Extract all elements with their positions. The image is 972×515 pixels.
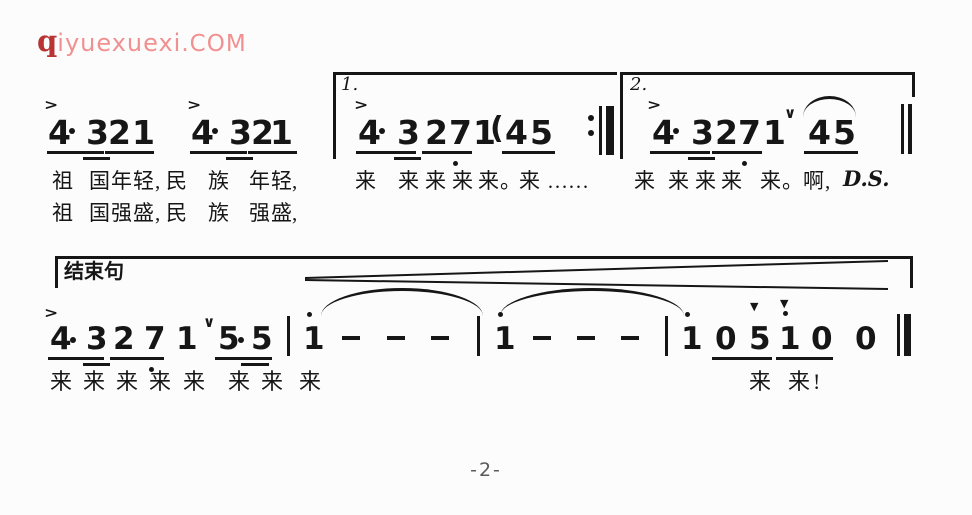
dash-rest xyxy=(387,336,405,340)
note: 4 xyxy=(505,116,528,149)
underline xyxy=(502,151,555,154)
note: 4 xyxy=(358,116,381,149)
lyric: ! xyxy=(813,371,820,393)
sheet-music-page: qiyuexuexi.COM >>>>432143211.43271(452.4… xyxy=(0,0,972,515)
lyric: 年 xyxy=(111,171,132,192)
barline xyxy=(287,316,290,356)
beam2 xyxy=(83,157,110,160)
lyric: 族 xyxy=(208,203,229,224)
volta2-label: 2. xyxy=(630,76,647,94)
underline xyxy=(776,357,833,360)
lyric: 来 xyxy=(83,371,105,393)
note: 0 xyxy=(715,324,737,355)
barline xyxy=(665,316,668,356)
note: 4 xyxy=(808,116,831,149)
volta2-right-stub xyxy=(912,72,915,97)
accent-icon: > xyxy=(187,98,201,112)
repeat-dot xyxy=(588,130,594,136)
dash-rest xyxy=(431,336,449,340)
underline xyxy=(650,151,710,154)
octave-dot-low xyxy=(149,367,154,372)
repeat-dot xyxy=(588,115,594,121)
note: 0 xyxy=(811,324,833,355)
breath-mark-icon: ∨ xyxy=(203,315,215,330)
lyric: 来 xyxy=(668,171,689,192)
lyric: , xyxy=(155,203,160,224)
note: 5 xyxy=(833,116,856,149)
lyric: 来 xyxy=(760,171,781,192)
dash-rest xyxy=(577,336,595,340)
lyric: , xyxy=(292,171,297,192)
underline xyxy=(804,151,858,154)
lyric: 祖 xyxy=(52,203,73,224)
octave-dot-high xyxy=(783,311,788,316)
note: 5 xyxy=(749,324,771,355)
note: 3 xyxy=(691,116,714,149)
note: 5 xyxy=(218,324,240,355)
lyric: 来 xyxy=(116,371,138,393)
lyric: 年 xyxy=(249,171,270,192)
lyric: 民 xyxy=(166,171,187,192)
lyric: 来 xyxy=(355,171,376,192)
underline xyxy=(712,357,772,360)
note: 0 xyxy=(855,324,877,355)
beam2 xyxy=(394,157,421,160)
duration-dot xyxy=(69,128,75,134)
underline xyxy=(105,151,154,154)
score-layer: >>>>432143211.43271(452.43271∨45D.S.结束句>… xyxy=(0,0,972,515)
accent-icon: > xyxy=(647,98,661,112)
underline xyxy=(215,357,272,360)
lyric: 国 xyxy=(89,203,110,224)
octave-dot-low xyxy=(453,161,458,166)
tie-arc xyxy=(500,288,684,316)
underline xyxy=(110,357,164,360)
lyric: 来 xyxy=(425,171,446,192)
beam2 xyxy=(226,157,253,160)
lyric: 盛 xyxy=(271,203,292,224)
note: 2 xyxy=(715,116,738,149)
lyric: , xyxy=(155,171,160,192)
lyric: …… xyxy=(547,171,589,192)
lyric: 强 xyxy=(111,203,132,224)
slur-arc xyxy=(803,96,856,117)
note: 7 xyxy=(738,116,761,149)
note: 1 xyxy=(270,116,293,149)
lyric: 来 xyxy=(721,171,742,192)
note: 4 xyxy=(652,116,675,149)
ending-phrase-label: 结束句 xyxy=(64,262,124,282)
note: 7 xyxy=(449,116,472,149)
lyric: 。 xyxy=(782,171,803,192)
volta2-top-line xyxy=(620,72,915,75)
lyric: 来 xyxy=(478,171,499,192)
note: 3 xyxy=(86,116,109,149)
system2-top-line xyxy=(55,256,913,259)
volta2-left-line xyxy=(620,72,623,159)
lyric: 轻 xyxy=(133,171,154,192)
system2-right-stub xyxy=(910,256,913,288)
note: 2 xyxy=(113,324,135,355)
lyric: , xyxy=(825,171,830,192)
lyric: 来 xyxy=(695,171,716,192)
dash-rest xyxy=(621,336,639,340)
note: 3 xyxy=(397,116,420,149)
lyric: 来 xyxy=(634,171,655,192)
lyric: 来 xyxy=(749,371,771,393)
note: 1 xyxy=(303,324,325,355)
lyric: 来 xyxy=(519,171,540,192)
underline xyxy=(48,357,104,360)
note: 2 xyxy=(425,116,448,149)
note: 1 xyxy=(779,324,801,355)
underline xyxy=(248,151,297,154)
lyric: 来 xyxy=(50,371,72,393)
repeat-barline-thick xyxy=(606,106,614,155)
final-barline xyxy=(908,104,912,154)
underline xyxy=(356,151,416,154)
final-barline xyxy=(897,314,900,356)
note: 4 xyxy=(48,116,71,149)
final-barline xyxy=(904,314,911,356)
breath-mark-icon: ∨ xyxy=(784,106,796,121)
note: 1 xyxy=(176,324,198,355)
beam2 xyxy=(83,363,110,366)
octave-dot-high xyxy=(685,312,690,317)
wedge-accent-icon: ▼ xyxy=(780,298,788,309)
duration-dot xyxy=(212,128,218,134)
beam2 xyxy=(688,157,715,160)
beam2 xyxy=(241,363,269,366)
lyric: 来 xyxy=(788,371,810,393)
duration-dot xyxy=(70,337,76,343)
lyric: 啊 xyxy=(803,171,824,192)
note: 3 xyxy=(229,116,252,149)
note: 1 xyxy=(132,116,155,149)
duration-dot xyxy=(238,337,244,343)
underline xyxy=(712,151,762,154)
lyric: 国 xyxy=(89,171,110,192)
duration-dot xyxy=(379,128,385,134)
dash-rest xyxy=(533,336,551,340)
lyric: 族 xyxy=(208,171,229,192)
underline xyxy=(190,151,247,154)
system2-left-stub xyxy=(55,256,58,288)
duration-dot xyxy=(673,128,679,134)
note: 7 xyxy=(144,324,166,355)
lyric: 来 xyxy=(228,371,250,393)
note: 1 xyxy=(494,324,516,355)
accent-icon: > xyxy=(354,98,368,112)
note: 1 xyxy=(681,324,703,355)
ds-label: D.S. xyxy=(843,168,890,189)
accent-icon: > xyxy=(44,306,58,320)
lyric: 。 xyxy=(500,171,521,192)
accent-icon: > xyxy=(44,98,58,112)
underline xyxy=(422,151,472,154)
octave-dot-high xyxy=(307,312,312,317)
final-barline xyxy=(901,104,904,154)
note: 4 xyxy=(50,324,72,355)
note: 2 xyxy=(108,116,131,149)
tie-arc xyxy=(321,288,483,316)
volta1-label: 1. xyxy=(341,76,358,94)
underline xyxy=(47,151,104,154)
lyric: 来 xyxy=(261,371,283,393)
repeat-barline-thin xyxy=(599,106,602,155)
wedge-accent-icon: ▼ xyxy=(750,301,758,312)
note: 5 xyxy=(251,324,273,355)
note: 3 xyxy=(86,324,108,355)
lyric: 轻 xyxy=(271,171,292,192)
dash-rest xyxy=(342,336,360,340)
octave-dot-low xyxy=(742,161,747,166)
lyric: , xyxy=(292,203,297,224)
lyric: 来 xyxy=(149,371,171,393)
note: 4 xyxy=(191,116,214,149)
paren-open: ( xyxy=(490,114,504,144)
page-number: -2- xyxy=(0,459,972,481)
volta1-top-line xyxy=(333,72,617,75)
note: 5 xyxy=(530,116,553,149)
note: 1 xyxy=(763,116,786,149)
volta1-left-line xyxy=(333,72,336,159)
lyric: 来 xyxy=(452,171,473,192)
lyric: 来 xyxy=(183,371,205,393)
lyric: 盛 xyxy=(133,203,154,224)
lyric: 祖 xyxy=(52,171,73,192)
lyric: 强 xyxy=(249,203,270,224)
lyric: 民 xyxy=(166,203,187,224)
lyric: 来 xyxy=(299,371,321,393)
barline xyxy=(477,316,480,356)
lyric: 来 xyxy=(398,171,419,192)
